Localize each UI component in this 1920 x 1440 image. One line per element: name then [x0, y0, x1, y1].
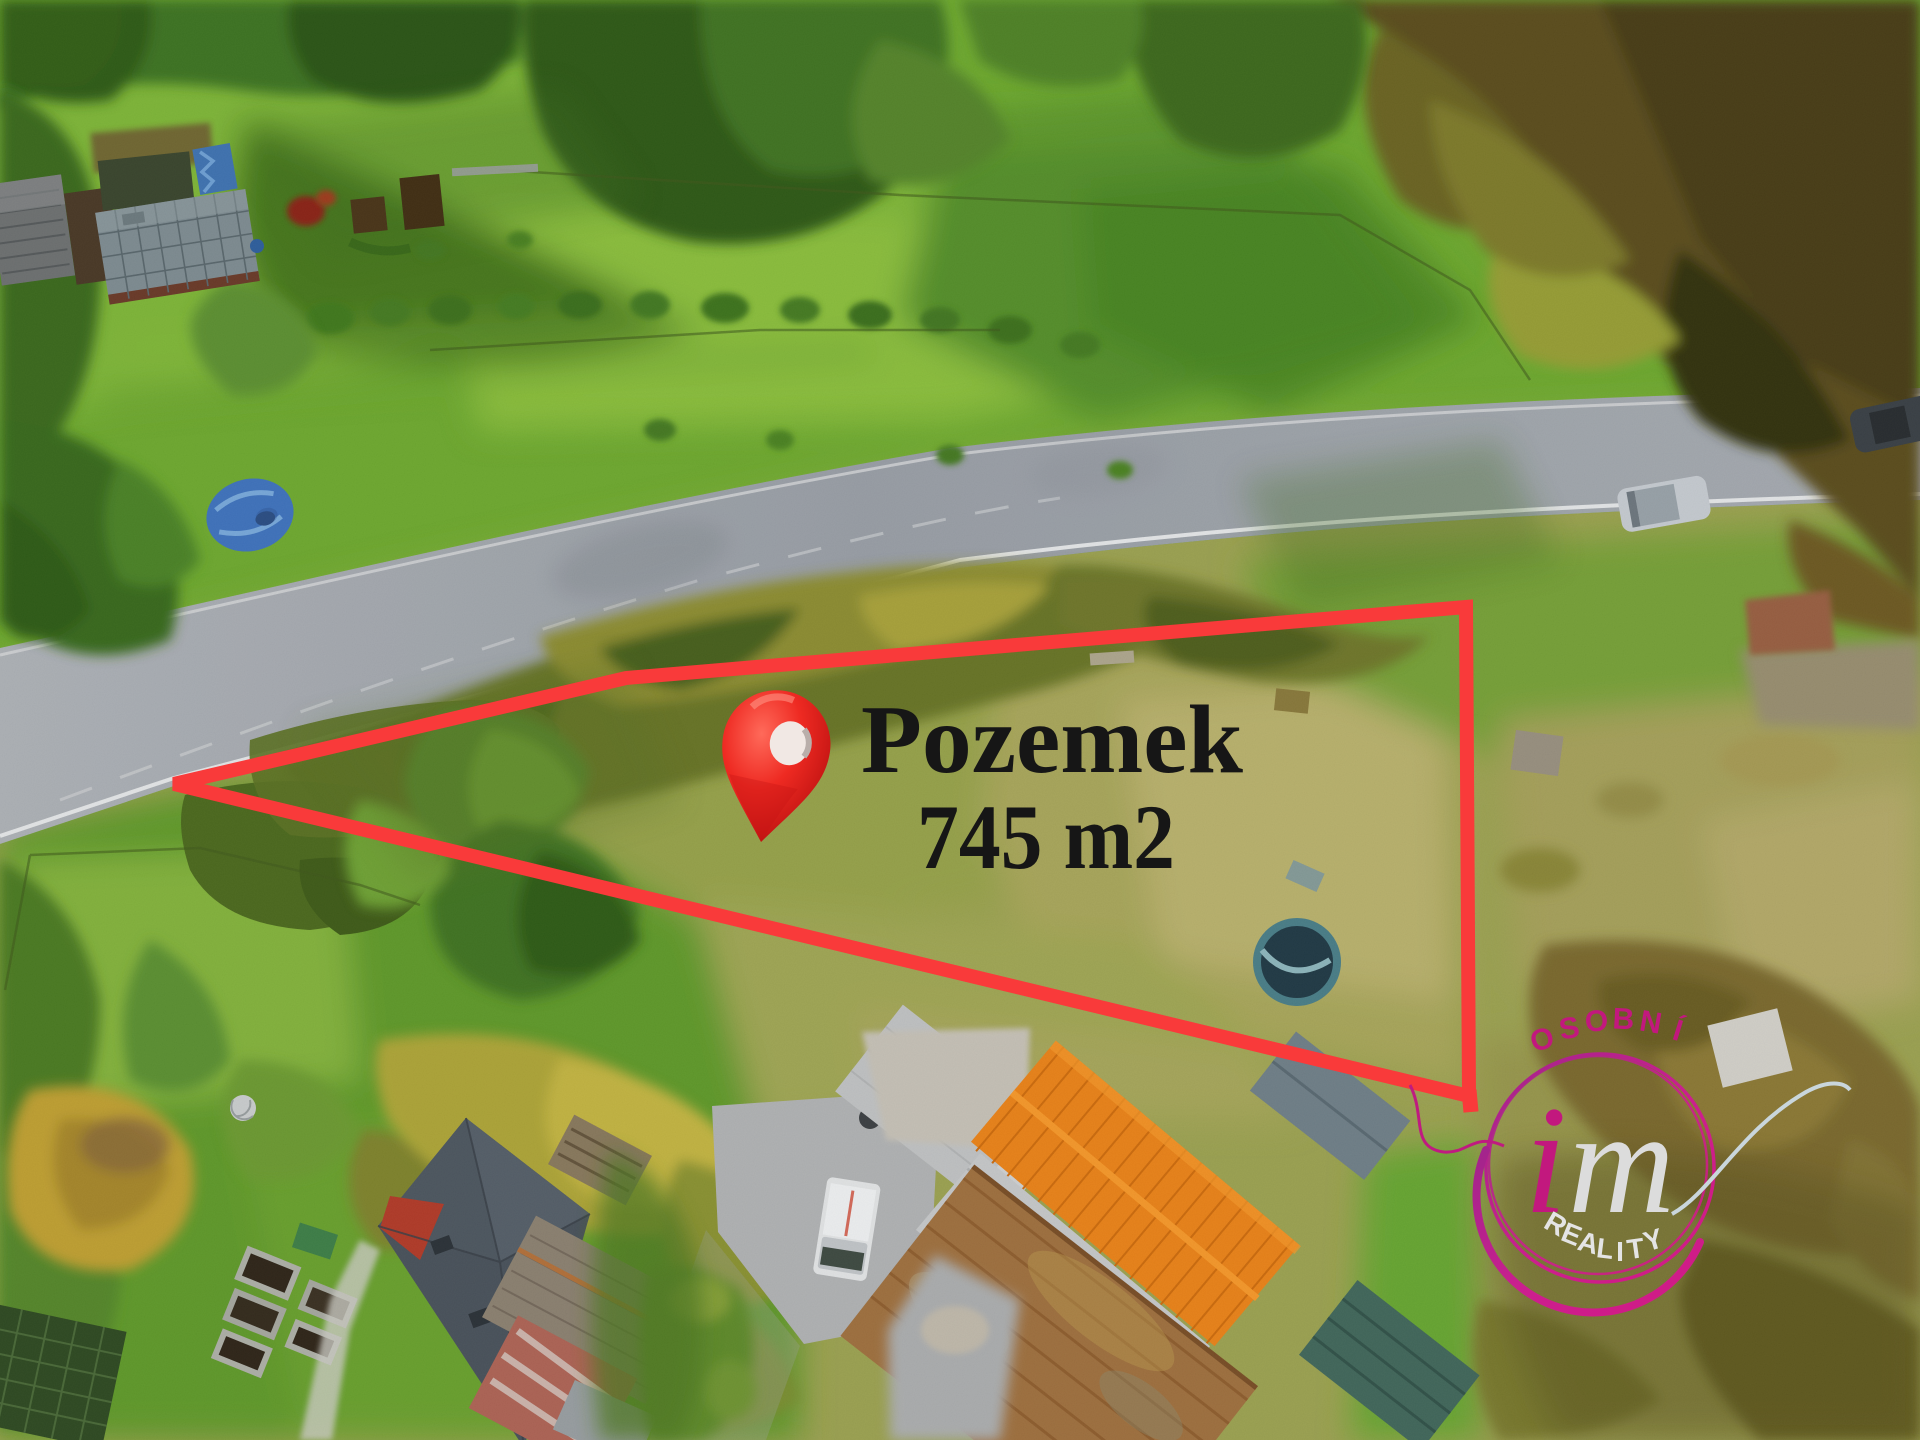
svg-text:m: m — [1568, 1081, 1675, 1245]
svg-text:I: I — [1616, 1236, 1624, 1267]
svg-text:O: O — [1584, 1004, 1609, 1038]
svg-text:Pozemek: Pozemek — [861, 686, 1243, 793]
svg-text:B: B — [1612, 1002, 1635, 1036]
svg-text:745 m2: 745 m2 — [917, 786, 1175, 888]
